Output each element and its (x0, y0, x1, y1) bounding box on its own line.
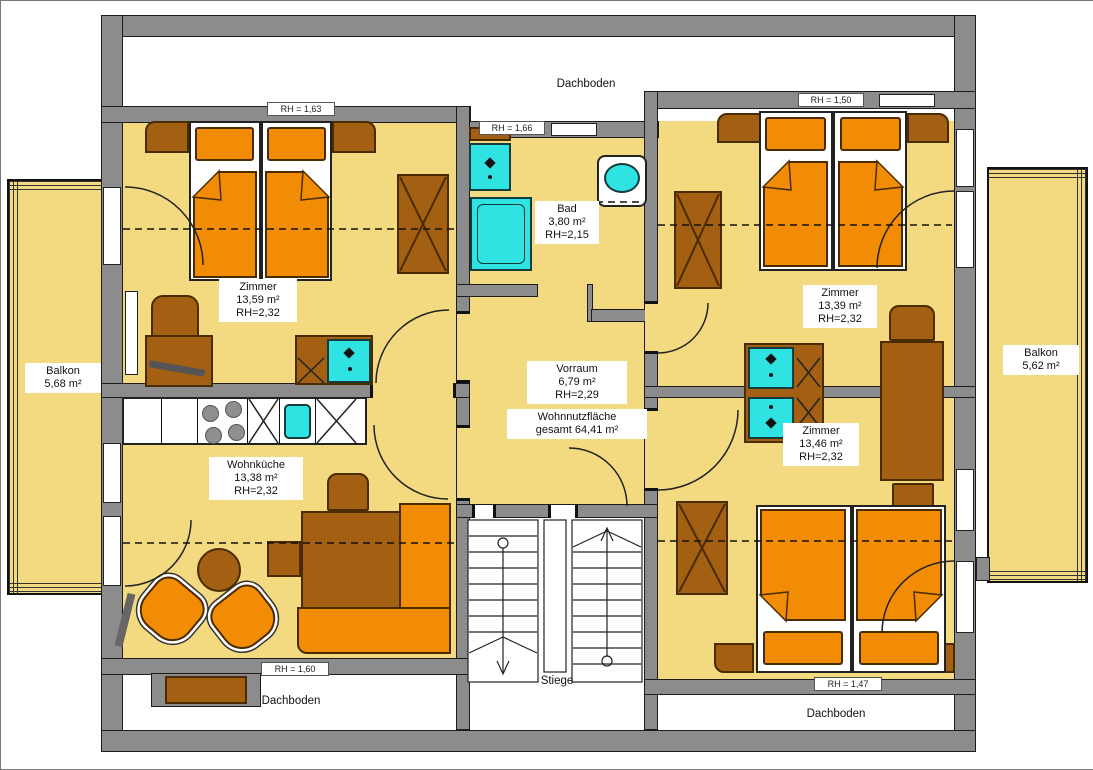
room-label-zimmer-top-left: Zimmer 13,59 m² RH=2,32 (219, 279, 297, 322)
corner-sofa-horizontal (297, 607, 451, 654)
bed-blanket (838, 161, 903, 267)
bed-blanket (193, 171, 257, 278)
bed-blanket (856, 509, 942, 621)
window-right-balcony-door-top (956, 191, 974, 268)
room-area: 13,38 m² (211, 472, 301, 485)
room-area: 6,79 m² (529, 376, 625, 389)
nightstand (717, 113, 761, 143)
window-left-kitchen (103, 443, 121, 503)
room-name: Wohnküche (211, 459, 301, 472)
counter-divider (161, 398, 162, 444)
counter-divider (247, 398, 248, 444)
stairwell-zone (463, 515, 651, 730)
total-area-line2: gesamt 64,41 m² (509, 424, 645, 437)
room-name: Balkon (27, 365, 99, 378)
room-height: RH=2,29 (529, 389, 625, 402)
door-jamb (453, 384, 456, 398)
room-label-zimmer-mid-right: Zimmer 13,46 m² RH=2,32 (783, 423, 859, 466)
washbasin (327, 339, 371, 383)
bed-pillow (763, 631, 843, 665)
window-bath-top (551, 123, 597, 136)
attic-label-bottom-right: Dachboden (791, 707, 881, 721)
nightstand (907, 113, 949, 143)
washbasin-drain (348, 367, 352, 371)
room-name: Vorraum (529, 363, 625, 376)
window-right-mid (956, 469, 974, 531)
room-label-zimmer-top-right: Zimmer 13,39 m² RH=2,32 (803, 285, 877, 328)
dining-table-round (197, 548, 241, 592)
bed-pillow (267, 127, 326, 161)
room-area: 13,46 m² (785, 438, 857, 451)
balcony-right (987, 167, 1088, 583)
wardrobe (676, 501, 728, 595)
door-opening-zimmer-tr (645, 304, 658, 351)
room-height: RH=2,15 (537, 229, 597, 242)
room-name: Bad (537, 203, 597, 216)
window-right-top (956, 129, 974, 187)
door-jamb (456, 498, 470, 501)
stove-burner (225, 401, 242, 418)
wall-zimmer-kitchen (101, 383, 373, 398)
room-name: Zimmer (221, 281, 295, 294)
bed-pillow (195, 127, 254, 161)
balcony-left-railing-north (9, 181, 105, 191)
stove-burner (205, 427, 222, 444)
door-jamb (575, 504, 578, 518)
room-area: 3,80 m² (537, 216, 597, 229)
door-opening-zimmer-tl (457, 314, 470, 380)
balcony-right-wall-stub (976, 557, 990, 581)
room-name: Balkon (1005, 347, 1077, 360)
room-height: RH=2,32 (211, 485, 301, 498)
bed-blanket (763, 161, 828, 267)
wardrobe (674, 191, 722, 289)
shower-tray (477, 204, 525, 264)
balcony-left-railing-west (9, 181, 21, 593)
window-left-balcony-door-top (103, 187, 121, 265)
wardrobe (397, 174, 449, 274)
room-height: RH=2,32 (805, 313, 875, 326)
attic-niche-table (165, 676, 247, 704)
room-label-balkon-left: Balkon 5,68 m² (25, 363, 101, 393)
window-top-right (879, 94, 935, 107)
wall-height-marker: RH = 1,47 (814, 677, 882, 691)
wall-divider-left (456, 106, 470, 730)
balcony-right-railing-south (989, 571, 1086, 581)
washbasin-drain (769, 405, 773, 409)
living-table (301, 511, 403, 609)
bed-pillow (765, 117, 826, 151)
balcony-right-railing-east (1074, 169, 1086, 581)
window-right-balcony-door-bottom (956, 561, 974, 633)
bed-blanket (265, 171, 329, 278)
wall-bath-bottom-left (456, 284, 538, 297)
wall-outer-right (954, 15, 976, 752)
room-label-bad: Bad 3,80 m² RH=2,15 (535, 201, 599, 244)
toilet-bowl (604, 163, 640, 193)
room-label-balkon-right: Balkon 5,62 m² (1003, 345, 1079, 375)
door-jamb (456, 311, 470, 314)
room-height: RH=2,32 (221, 307, 295, 320)
radiator (125, 291, 138, 375)
washbasin-drain (769, 373, 773, 377)
room-name: Zimmer (805, 287, 875, 300)
door-jamb (548, 504, 551, 518)
counter-divider (197, 398, 198, 444)
attic-label-bottom-left: Dachboden (246, 694, 336, 708)
room-name: Zimmer (785, 425, 857, 438)
door-jamb (456, 380, 470, 383)
nightstand (145, 121, 189, 153)
floor-plan: Dachboden Dachboden Dachboden Stiege RH … (0, 0, 1093, 770)
wall-height-marker: RH = 1,50 (798, 93, 864, 107)
chair (889, 305, 935, 341)
bed-pillow (859, 631, 939, 665)
wall-height-marker: RH = 1,66 (479, 121, 545, 135)
window-left-balcony-door-bottom (103, 516, 121, 586)
door-jamb (644, 301, 658, 304)
nightstand (332, 121, 376, 153)
attic-label-top: Dachboden (536, 77, 636, 91)
sofa-chair (327, 473, 369, 511)
stove-burner (202, 405, 219, 422)
desk-chair (151, 295, 199, 339)
room-area: 5,68 m² (27, 378, 99, 391)
room-area: 13,39 m² (805, 300, 875, 313)
total-area-label: Wohnnutzfläche gesamt 64,41 m² (507, 409, 647, 439)
wall-height-marker: RH = 1,60 (261, 662, 329, 676)
stove-burner (228, 424, 245, 441)
wall-outer-bottom (101, 730, 976, 752)
wall-height-marker: RH = 1,63 (267, 102, 335, 116)
room-area: 13,59 m² (221, 294, 295, 307)
bed-blanket (760, 509, 846, 621)
room-height: RH=2,32 (785, 451, 857, 464)
door-jamb (493, 504, 496, 518)
side-block (267, 541, 301, 577)
counter-divider (315, 398, 316, 444)
room-label-vorraum: Vorraum 6,79 m² RH=2,29 (527, 361, 627, 404)
balcony-right-railing-north (989, 169, 1086, 179)
stairs-label: Stiege (521, 674, 593, 688)
bath-cabinet-knob (488, 175, 492, 179)
counter-divider (279, 398, 280, 444)
door-jamb (644, 488, 658, 491)
door-jamb (370, 384, 373, 398)
total-area-line1: Wohnnutzfläche (509, 411, 645, 424)
room-area: 5,62 m² (1005, 360, 1077, 373)
door-jamb (456, 425, 470, 428)
stair-opening-mid (551, 505, 575, 518)
nightstand (714, 643, 754, 673)
door-opening-hall (373, 384, 453, 398)
wall-outer-top (101, 15, 976, 37)
wall-bottom-right-section (644, 679, 976, 695)
door-jamb (472, 504, 475, 518)
kitchen-sink (284, 404, 311, 439)
stair-opening-left (475, 505, 493, 518)
door-opening-kitchen (457, 428, 470, 498)
balcony-left-railing-south (9, 583, 105, 593)
room-label-wohnkueche: Wohnküche 13,38 m² RH=2,32 (209, 457, 303, 500)
shower (470, 197, 532, 271)
bed-pillow (840, 117, 901, 151)
door-jamb (644, 351, 658, 354)
table (880, 341, 944, 481)
kitchen-counter (122, 397, 367, 445)
